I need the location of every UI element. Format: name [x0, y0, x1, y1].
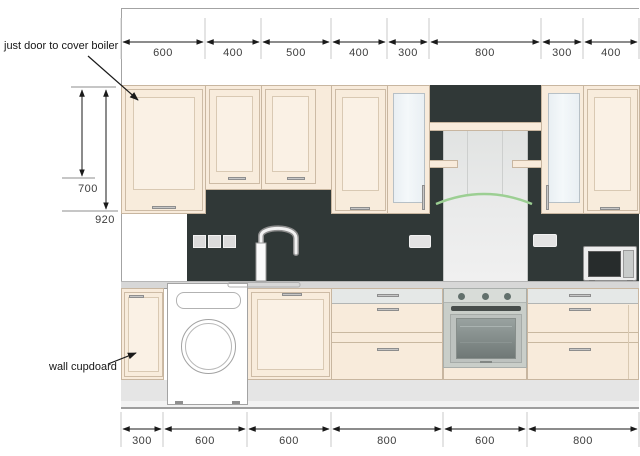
door-panel: [342, 97, 379, 191]
base-cabinet-narrow: [121, 288, 164, 380]
dim-top-500: 500: [274, 47, 318, 59]
glass-door-cabinet-right: [541, 85, 584, 214]
door-panel: [128, 297, 159, 372]
microwave-window: [588, 251, 621, 277]
dim-top-400: 400: [211, 47, 255, 59]
glass-door: [548, 93, 580, 203]
drawer-divider: [332, 342, 442, 343]
built-in-oven: [443, 288, 527, 368]
washer-door-inner: [185, 323, 232, 370]
door-panel: [594, 97, 631, 191]
oven-knob: [504, 293, 511, 300]
light-switch: [223, 235, 236, 248]
drawer-divider: [528, 332, 638, 333]
hood-seam: [502, 131, 503, 195]
washing-machine: [167, 283, 248, 405]
wall-cupboard-note: wall cupdoard: [49, 361, 117, 373]
dim-top-400c: 400: [589, 47, 633, 59]
wall-cabinet: [205, 85, 262, 190]
dim-top-300b: 300: [540, 47, 584, 59]
door-handle: [282, 293, 302, 296]
dim-top-400b: 400: [337, 47, 381, 59]
drawer-divider: [528, 342, 638, 343]
drawer-unit-left: [331, 288, 443, 380]
oven-window: [456, 318, 516, 359]
dim-top-800: 800: [463, 47, 507, 59]
dim-bottom-600c: 600: [463, 435, 507, 447]
drawer-unit-right: [527, 288, 639, 380]
door-panel: [133, 97, 195, 190]
oven-window-reflection: [460, 326, 512, 327]
dim-top-600: 600: [141, 47, 185, 59]
oven-window-reflection: [460, 342, 512, 343]
drawer-handle: [569, 294, 591, 297]
door-panel: [257, 299, 324, 370]
dim-left-920: 920: [83, 214, 127, 226]
door-panel: [272, 96, 309, 172]
boiler-note: just door to cover boiler: [4, 40, 118, 52]
oven-knob: [458, 293, 465, 300]
oven-handle: [451, 306, 521, 311]
dim-top-300: 300: [386, 47, 430, 59]
cooker-hood-chimney: [443, 131, 528, 281]
dim-bottom-600: 600: [183, 435, 227, 447]
wall-cabinet: [261, 85, 332, 190]
light-switch: [208, 235, 221, 248]
drawer-handle: [377, 294, 399, 297]
tall-wall-cabinet: [331, 85, 388, 214]
drawer-handle: [569, 308, 591, 311]
door-handle: [422, 185, 425, 210]
hood-seam: [467, 131, 468, 195]
hood-bracket-left: [427, 160, 458, 168]
kitchen-elevation-drawing: 600 400 500 400 300 800 300 400 300 600 …: [0, 0, 640, 456]
ceiling-line: [121, 8, 639, 9]
floor-line: [121, 407, 639, 409]
detergent-drawer: [176, 292, 241, 309]
dim-bottom-300: 300: [120, 435, 164, 447]
door-handle: [350, 207, 370, 210]
drawer-divider: [332, 332, 442, 333]
washer-foot: [232, 401, 240, 404]
door-panel: [216, 96, 253, 172]
base-cabinet: [247, 288, 332, 380]
drawer-handle: [569, 348, 591, 351]
dim-bottom-800: 800: [365, 435, 409, 447]
drawer-handle: [377, 348, 399, 351]
dim-bottom-800b: 800: [561, 435, 605, 447]
glass-door: [393, 93, 425, 203]
microwave-controls: [623, 250, 634, 278]
power-socket: [409, 235, 431, 248]
hood-top-rail: [427, 122, 543, 131]
drawer-stile: [628, 305, 629, 379]
door-handle: [152, 206, 176, 209]
oven-filler: [443, 368, 527, 380]
hood-bracket-right: [512, 160, 543, 168]
power-socket: [533, 234, 557, 247]
door-handle: [228, 177, 246, 180]
glass-door-cabinet-left: [387, 85, 430, 214]
light-switch: [193, 235, 206, 248]
wall-cabinet-boiler: [121, 85, 206, 214]
drawer-handle: [377, 308, 399, 311]
microwave: [583, 246, 637, 281]
door-handle: [129, 295, 144, 298]
door-handle: [287, 177, 305, 180]
oven-brand-mark: [480, 361, 492, 363]
door-handle: [600, 207, 620, 210]
dim-bottom-600b: 600: [267, 435, 311, 447]
dim-left-700: 700: [66, 183, 110, 195]
tall-wall-cabinet: [583, 85, 640, 214]
door-handle: [546, 185, 549, 210]
washer-foot: [175, 401, 183, 404]
oven-knob: [482, 293, 489, 300]
